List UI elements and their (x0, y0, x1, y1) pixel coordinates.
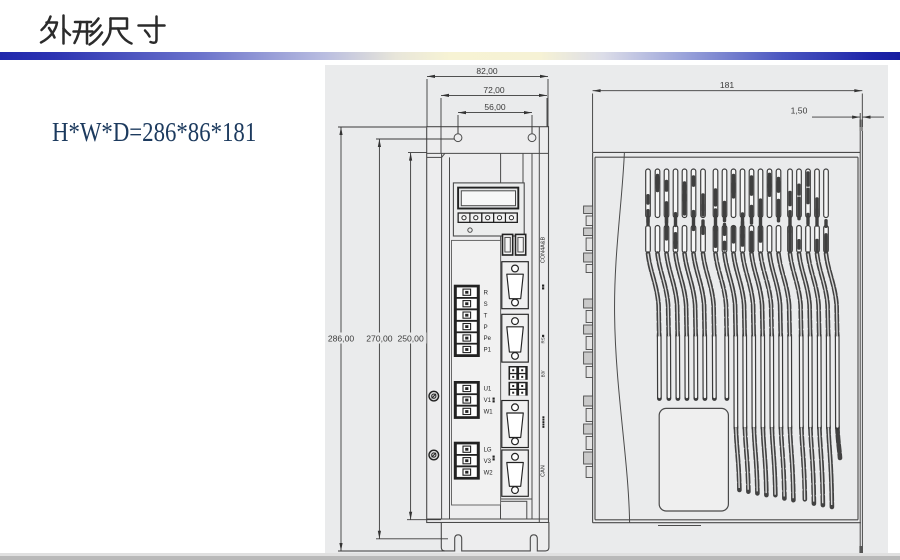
svg-text:56,00: 56,00 (484, 102, 506, 112)
svg-text:181: 181 (720, 80, 735, 90)
svg-text:Pe: Pe (484, 336, 492, 342)
svg-text:82,00: 82,00 (476, 66, 498, 76)
svg-text:■■■■■: ■■■■■ (541, 415, 546, 428)
svg-text:R: R (484, 290, 489, 296)
svg-text:CON4A&B: CON4A&B (541, 237, 547, 264)
svg-text:T: T (484, 313, 488, 319)
svg-text:72,00: 72,00 (483, 85, 505, 95)
svg-text:■■: ■■ (491, 397, 496, 403)
svg-text:P: P (484, 325, 488, 331)
svg-text:RS■: RS■ (541, 334, 546, 343)
svg-text:286,00: 286,00 (328, 334, 355, 344)
svg-text:1,50: 1,50 (791, 106, 808, 116)
svg-text:250,00: 250,00 (397, 334, 424, 344)
svg-text:■■: ■■ (491, 455, 496, 461)
svg-text:S: S (484, 302, 488, 308)
svg-text:W1: W1 (484, 410, 494, 416)
svg-text:270,00: 270,00 (366, 334, 393, 344)
svg-text:LG: LG (484, 447, 492, 453)
svg-text:W2: W2 (484, 470, 494, 476)
svg-text:CAN: CAN (541, 465, 547, 477)
svg-text:U1: U1 (484, 387, 492, 393)
svg-text:B3/: B3/ (541, 370, 546, 378)
svg-text:P1: P1 (484, 348, 492, 354)
svg-text:■■: ■■ (541, 284, 546, 290)
